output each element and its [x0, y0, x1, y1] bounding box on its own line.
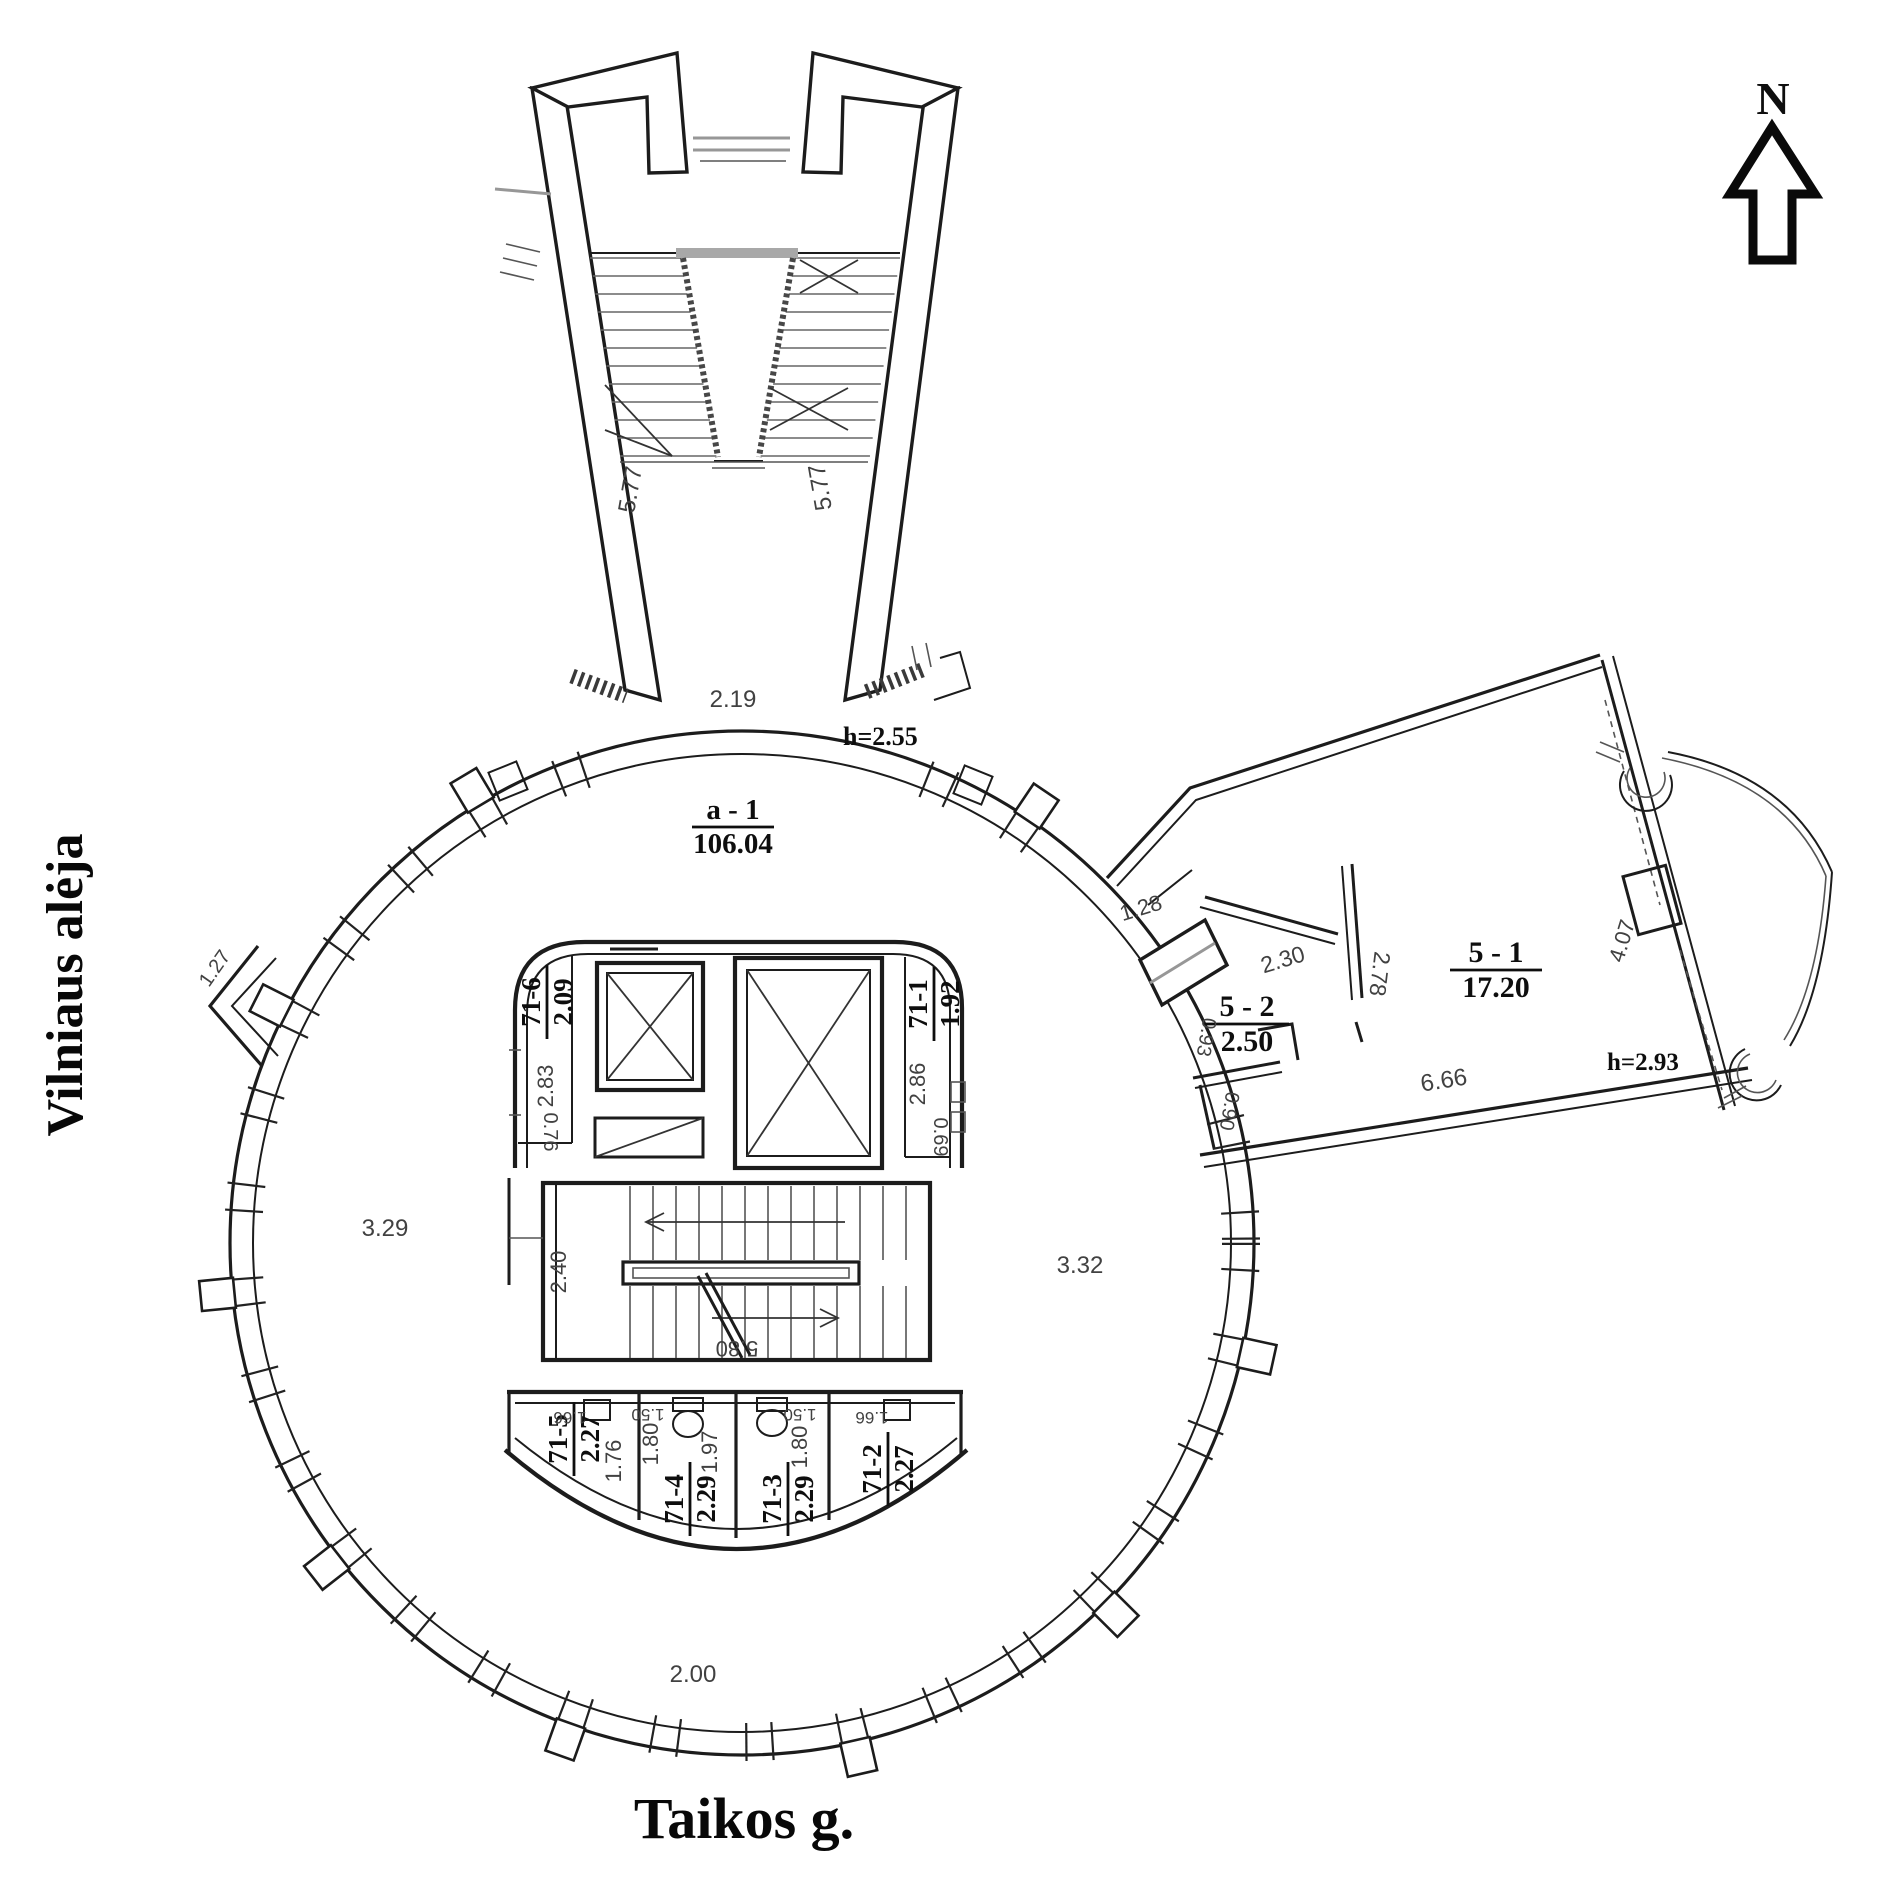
room-code: 5 - 1 — [1469, 936, 1524, 969]
room-52-right-wall — [1352, 864, 1362, 998]
label-d329: 3.29 — [362, 1215, 409, 1242]
jamb-tick — [926, 643, 931, 667]
label-d332: 3.32 — [1057, 1252, 1104, 1279]
label-716-depth: 2.83 — [533, 1065, 558, 1108]
duct-diagonal — [595, 1118, 703, 1157]
floor-plan-canvas: a - 1 106.04 5.77 5.77 2.19 h=2.55 1.27 … — [0, 0, 1900, 1896]
label-716-width: 0.76 — [539, 1113, 561, 1152]
label-entrance-width: 2.19 — [710, 686, 757, 713]
room-area: 2.29 — [691, 1475, 721, 1522]
wing-window-wall — [1602, 660, 1724, 1110]
core-outline-inner — [527, 954, 950, 1168]
wall-pier-rect — [1015, 784, 1059, 829]
wall-pier — [545, 1718, 585, 1760]
stairway-right-wall — [845, 88, 958, 700]
room-code: 71-1 — [903, 979, 933, 1029]
room-area: 2.29 — [789, 1475, 819, 1522]
label-d200: 2.00 — [670, 1661, 717, 1688]
label-715-depth: 1.76 — [601, 1440, 626, 1483]
label-711-depth: 2.86 — [905, 1063, 930, 1106]
stair-divider-inner — [633, 1268, 849, 1278]
room-area: 2.50 — [1221, 1025, 1274, 1058]
hall-code: a - 1 — [706, 794, 759, 826]
room-area: 1.92 — [935, 980, 965, 1027]
room-code: 5 - 2 — [1220, 990, 1275, 1023]
wall-pier — [250, 984, 294, 1026]
ornament-stub — [1600, 742, 1624, 752]
label-713-side: 1.80 — [787, 1426, 812, 1469]
street-label-left: Vilniaus alėja — [37, 834, 94, 1137]
wing-upper-wall — [1107, 655, 1600, 878]
stair-void-top — [676, 248, 798, 258]
compass: N — [1730, 73, 1815, 260]
room-area: 2.09 — [548, 978, 578, 1025]
inner-wall-ring — [253, 754, 1231, 1732]
window-tick — [391, 1596, 417, 1624]
jamb-tick — [506, 244, 540, 252]
label-wing-facade: 4.07 — [1604, 917, 1640, 965]
label-hall: a - 1 106.04 — [692, 794, 774, 860]
label-height-293: h=2.93 — [1607, 1049, 1679, 1076]
wall-stub — [495, 189, 551, 194]
label-d128: 1.28 — [1117, 890, 1165, 926]
window-tick — [1133, 1522, 1164, 1544]
stairway-wing — [495, 53, 970, 700]
label-wing-bottom: 6.66 — [1419, 1064, 1469, 1098]
wing-upper-wall-inner — [1117, 667, 1602, 886]
wing-window-wall — [1613, 656, 1735, 1106]
wall-pier — [1015, 784, 1059, 829]
room-52-right-wall-inner — [1342, 866, 1352, 1000]
wall-pier — [1093, 1592, 1138, 1637]
junction-hatch — [572, 676, 626, 696]
window-tick — [411, 1612, 435, 1641]
room-code: 71-6 — [516, 977, 546, 1027]
wall-pier-rect — [304, 1545, 349, 1590]
ornament-curve — [1662, 758, 1826, 876]
label-stairwell-width: 2.40 — [546, 1251, 571, 1294]
room-area: 17.20 — [1462, 971, 1530, 1004]
label-height-255: h=2.55 — [843, 722, 918, 751]
wall-pier-rect — [840, 1737, 877, 1777]
wall-pier-rect — [250, 984, 294, 1026]
ring-window-ticks — [199, 752, 1276, 1777]
ornament-stub — [1596, 752, 1620, 762]
window-tick — [1023, 1632, 1045, 1663]
window-tick — [388, 865, 414, 893]
label-711-width: 0.69 — [929, 1118, 951, 1157]
label-room-51: 5 - 1 17.20 — [1450, 936, 1542, 1004]
wing-lower-wall-inner — [1204, 1080, 1752, 1167]
label-713-top: 1.50 — [783, 1405, 816, 1424]
room-52-top-wall — [1205, 897, 1338, 934]
toilet-tank-icon — [673, 1398, 703, 1411]
stair-void — [681, 256, 795, 459]
north-arrow-icon — [1730, 127, 1815, 260]
label-wing-top: 2.30 — [1257, 940, 1307, 978]
room-code: 71-3 — [757, 1474, 787, 1524]
stairwell-treads — [630, 1186, 906, 1358]
label-715-width: 1.66 — [553, 1408, 586, 1427]
room-code: 71-4 — [659, 1474, 689, 1524]
rotunda-ring — [199, 731, 1276, 1777]
wall-pier-rect — [199, 1278, 236, 1311]
label-714-top: 1.50 — [631, 1405, 664, 1424]
wall-pier — [451, 768, 494, 813]
label-714-side: 1.80 — [638, 1423, 663, 1466]
door-stub — [1356, 1022, 1362, 1042]
wing-lower-wall — [1200, 1068, 1748, 1155]
label-stairwell-length: 5.80 — [716, 1336, 759, 1361]
jamb-tick — [503, 258, 537, 266]
label-wing-partition: 2.78 — [1364, 950, 1395, 998]
label-712-width: 1.66 — [855, 1408, 888, 1427]
wall-pier — [1237, 1338, 1277, 1375]
labels: a - 1 106.04 5.77 5.77 2.19 h=2.55 1.27 … — [195, 462, 1679, 1688]
ornament-curve — [1668, 752, 1832, 872]
outer-wall-ring — [230, 731, 1254, 1755]
toilet-icon — [757, 1410, 787, 1436]
label-flight-right: 5.77 — [803, 462, 838, 513]
north-label: N — [1756, 73, 1789, 124]
street-label-bottom: Taikos g. — [634, 1786, 854, 1851]
stairway-left-wall — [532, 88, 660, 700]
label-714-depth: 1.97 — [697, 1431, 722, 1474]
wall-pier — [304, 1545, 349, 1590]
room-52-top-wall-inner — [1200, 907, 1335, 944]
hall-area: 106.04 — [693, 828, 773, 860]
wall-pier-rect — [1237, 1338, 1277, 1375]
jamb-tick — [500, 272, 534, 280]
east-wing — [1107, 655, 1832, 1167]
room-code: 71-2 — [857, 1444, 887, 1494]
wall-pier — [840, 1737, 877, 1777]
wall-pier-rect — [1093, 1592, 1138, 1637]
wall-pier-rect — [545, 1718, 585, 1760]
wall-pier-rect — [451, 768, 494, 813]
jamb-tick — [912, 646, 917, 670]
window-tick — [340, 916, 369, 940]
floor-plan-page: a - 1 106.04 5.77 5.77 2.19 h=2.55 1.27 … — [0, 0, 1900, 1896]
label-room-716: 71-6 2.09 — [516, 965, 578, 1039]
room-area: 2.27 — [889, 1445, 919, 1492]
junction-wall-piece — [934, 652, 970, 700]
window-tick — [323, 938, 354, 960]
window-tick — [408, 847, 432, 876]
core-stairwell — [543, 1183, 930, 1360]
ornament-curve — [1790, 872, 1832, 1046]
label-room-713: 71-3 2.29 — [757, 1462, 819, 1536]
stair-divider — [623, 1262, 859, 1284]
wall-pier — [199, 1278, 236, 1311]
core-outline — [515, 942, 962, 1168]
